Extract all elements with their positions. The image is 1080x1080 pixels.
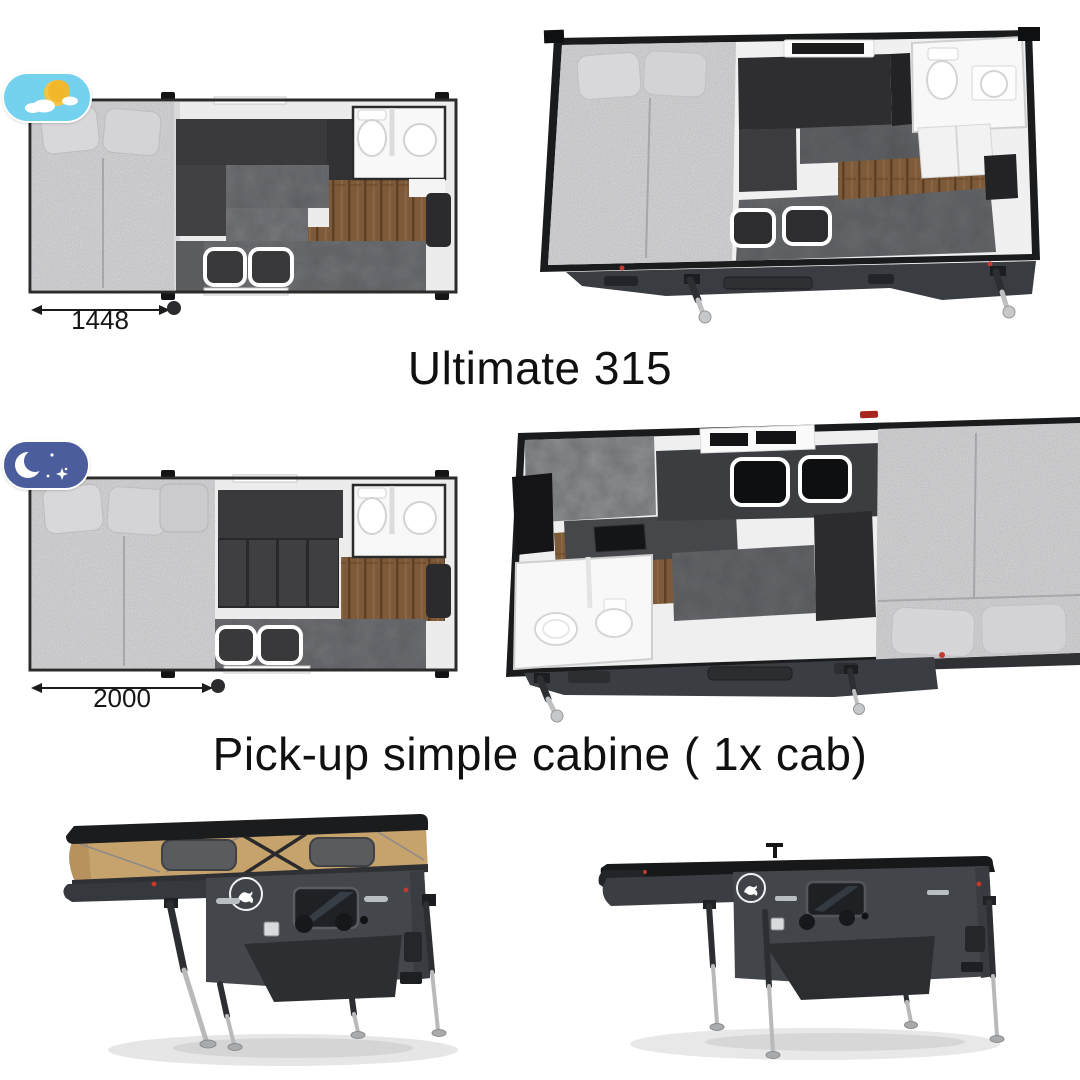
toilet-tank xyxy=(358,110,386,120)
pillow xyxy=(981,604,1067,655)
camper-product-sheet: 1448 xyxy=(0,0,1080,1080)
kitchen-counter xyxy=(738,54,892,130)
canvas-window xyxy=(310,838,374,866)
lower-skirt xyxy=(765,936,935,1000)
basin xyxy=(404,124,436,156)
bed-dimension: 2000 xyxy=(31,679,225,713)
toilet-tank xyxy=(358,488,386,498)
marker-light xyxy=(404,888,409,893)
pillow xyxy=(106,486,167,536)
window-hatch xyxy=(800,457,850,501)
bench-seat xyxy=(814,511,876,621)
window-hatch xyxy=(205,249,245,285)
day-mode-toggle[interactable] xyxy=(2,72,92,123)
latch-handle xyxy=(927,890,949,895)
bed xyxy=(548,42,736,265)
pillow xyxy=(643,50,707,97)
window-hatch xyxy=(784,208,830,244)
dinette-table xyxy=(800,123,930,164)
jack-foot xyxy=(211,679,225,693)
exterior-popup-closed xyxy=(585,826,1037,1080)
side-window-opening xyxy=(512,473,554,555)
pillow xyxy=(891,607,975,657)
window-hatch xyxy=(217,627,255,663)
marker-light xyxy=(939,652,945,658)
bathroom xyxy=(353,485,445,557)
bed-dimension: 1448 xyxy=(31,301,181,335)
toilet xyxy=(535,613,577,645)
roof-accessory xyxy=(766,843,783,858)
wardrobe-panels xyxy=(218,538,339,608)
render-3d-top-night xyxy=(504,403,1080,735)
render-3d-top-day xyxy=(538,28,1050,323)
pillow xyxy=(577,52,642,100)
bed xyxy=(32,102,174,290)
canvas-window xyxy=(162,840,236,870)
window-hatch xyxy=(732,210,774,246)
corner-clamp xyxy=(544,30,564,44)
lower-skirt xyxy=(244,935,402,1002)
bed xyxy=(876,423,1080,661)
jack-leg xyxy=(703,900,724,1031)
bathroom xyxy=(514,555,652,669)
marker-light xyxy=(152,882,157,887)
kitchen-counter xyxy=(218,490,343,538)
basin xyxy=(596,609,632,637)
marker-light xyxy=(620,266,625,271)
folded-blanket xyxy=(160,484,208,532)
window-hatch xyxy=(250,249,292,285)
cooktop xyxy=(594,524,646,552)
model-2-title: Pick-up simple cabine ( 1x cab) xyxy=(0,727,1080,781)
tall-wardrobe xyxy=(890,53,912,126)
latch-handle xyxy=(364,896,388,902)
latch-handle xyxy=(216,898,240,904)
latch-handle xyxy=(775,896,797,901)
kangaroo-logo xyxy=(737,874,765,902)
marker-light xyxy=(643,870,647,874)
overhead-slot xyxy=(700,425,815,453)
marker-light xyxy=(988,262,993,267)
toilet xyxy=(927,61,957,99)
basin xyxy=(404,502,436,534)
corner-clamp xyxy=(1018,27,1040,41)
lower-white-cabinets xyxy=(918,124,994,178)
tall-cabinet xyxy=(327,119,353,180)
moon-stars-icon xyxy=(4,442,88,488)
dinette-ottoman xyxy=(672,545,816,621)
bed-dimension-label: 2000 xyxy=(93,683,151,713)
side-seat xyxy=(984,154,1018,200)
tail-light xyxy=(860,411,878,419)
kitchen-counter xyxy=(176,119,353,165)
jack-foot xyxy=(167,301,181,315)
side-seat xyxy=(426,564,451,618)
toilet xyxy=(358,120,386,156)
bathroom xyxy=(912,37,1026,132)
kangaroo-logo xyxy=(230,878,262,910)
model-1-title: Ultimate 315 xyxy=(0,341,1080,395)
rear-hatch xyxy=(965,926,985,952)
rear-hatch xyxy=(404,932,422,962)
bed-extended xyxy=(32,480,215,668)
pillow xyxy=(42,484,104,535)
sun-cloud-icon xyxy=(4,74,90,121)
side-seat xyxy=(426,193,451,247)
toilet xyxy=(358,498,386,534)
exterior-popup-open xyxy=(58,792,482,1080)
floorplan-night-top-view: 2000 xyxy=(28,470,460,708)
window-hatch xyxy=(732,459,788,505)
body-window xyxy=(807,882,865,916)
wardrobe-cabinet xyxy=(176,165,226,236)
bed-dimension-label: 1448 xyxy=(71,305,129,335)
basin xyxy=(981,71,1007,97)
window-hatch xyxy=(259,627,301,663)
marker-light xyxy=(977,882,982,887)
night-mode-toggle[interactable] xyxy=(2,440,90,490)
floorplan-day-top-view: 1448 xyxy=(28,92,460,330)
base-cabinet xyxy=(739,128,797,192)
